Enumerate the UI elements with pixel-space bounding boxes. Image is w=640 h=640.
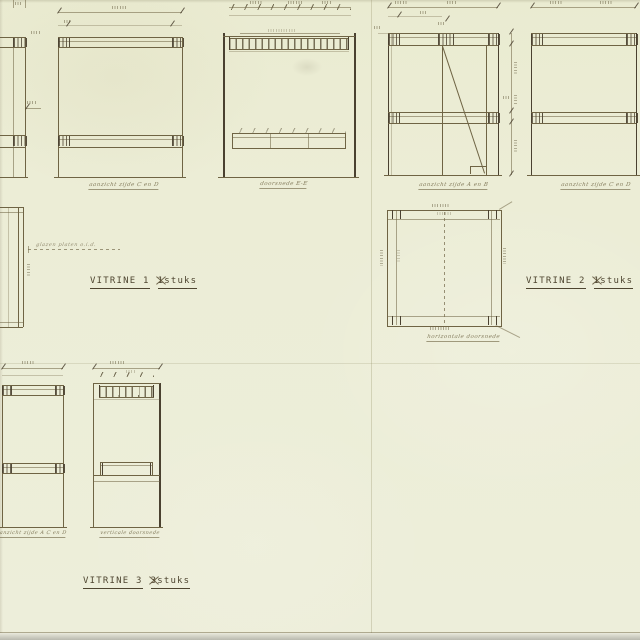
v1-plan-edge	[23, 207, 24, 327]
v2-plan-corner-post	[392, 210, 401, 219]
v1-ground-line	[218, 177, 359, 178]
v1-B-toprail-block	[58, 38, 70, 47]
v3-F-toprail-line	[2, 395, 63, 396]
v1-C-dim-line	[229, 7, 351, 8]
v2-E-toprail-line	[531, 45, 636, 46]
v2-E-midrail-block	[626, 113, 638, 123]
v1-B-midrail-line	[58, 147, 182, 148]
v1-B-midrail-block	[58, 136, 70, 146]
v2-D-dim-tick	[445, 15, 450, 21]
v2-E-toprail-block	[626, 34, 638, 45]
caption-v2-plan: horizontale doorsnede	[426, 334, 500, 342]
v2-E-dim-line	[531, 7, 636, 8]
dimension-text-illegible	[126, 370, 136, 373]
v2-E-midrail-line	[531, 116, 636, 117]
v2-ground-line	[384, 175, 502, 176]
dimension-text-illegible	[514, 95, 517, 105]
v1-A-toprail-block	[13, 38, 27, 47]
fold-crease-vertical	[371, 0, 372, 633]
vitrine1-quantity: 1stuks	[158, 276, 198, 289]
v1-C-right-edge	[354, 33, 356, 177]
caption-v2-front: aanzicht zijde A en B	[418, 182, 488, 190]
v1-B-left-edge	[58, 37, 59, 177]
v2-E-toprail-line	[531, 33, 636, 34]
v3-G-block-gap	[116, 387, 119, 395]
vitrine1-qty-unit: stuks	[164, 276, 197, 286]
v3-F-dim-tick	[61, 363, 66, 369]
dimension-text-illegible	[430, 327, 450, 330]
v1-plan-note-tick	[28, 246, 29, 253]
v2-D-left-inner	[391, 33, 392, 175]
caption-v3-front: aanzicht zijde A C en D	[0, 530, 67, 538]
v1-plan-line	[0, 207, 23, 208]
v1-C-shelf-side	[345, 133, 346, 148]
v2-plan-corner-post	[392, 316, 401, 325]
dimension-text-illegible	[600, 1, 612, 4]
vitrine2-label: VITRINE 2 1stuks	[526, 276, 633, 289]
dimension-text-illegible	[374, 26, 382, 29]
v1-plan-line	[0, 322, 23, 323]
v3-F-midrail-line	[2, 473, 63, 474]
dimension-text-illegible	[503, 248, 506, 264]
v1-B-dim-tick	[180, 7, 185, 13]
v3-F-right-edge	[63, 385, 64, 527]
scan-edge-left	[0, 0, 3, 640]
v2-plan-leader-line	[499, 201, 512, 210]
dimension-text-illegible	[288, 1, 302, 4]
v1-plan-inner-line	[8, 207, 9, 327]
v1-A-dim-tick	[25, 0, 26, 8]
drawing-sheet: aanzicht zijde C en D doorsnede E-E	[0, 0, 640, 640]
v1-plan-line	[0, 212, 23, 213]
v3-ground-line	[90, 527, 163, 528]
v3-G-left-edge	[93, 383, 94, 527]
v3-G-bracket	[153, 385, 154, 397]
v2-D-door-edge	[442, 45, 443, 175]
v2-D-dim-tick	[496, 2, 501, 8]
scan-edge-top	[0, 0, 640, 3]
v2-E-midrail-line	[531, 123, 636, 124]
v2-D-side-tick	[378, 33, 388, 34]
v3-F-toprail-block	[2, 386, 12, 395]
dimension-text-illegible	[438, 22, 446, 25]
dimension-text-illegible	[110, 361, 124, 364]
dimension-text-illegible	[31, 31, 41, 34]
v2-plan-centerline	[444, 212, 445, 323]
v2-D-door-hinge-block	[438, 34, 454, 45]
v1-A-midrail-block	[13, 136, 27, 146]
v2-D-left-edge	[388, 33, 389, 175]
v2-plan-inner-line	[396, 210, 397, 325]
v2-E-right-edge	[636, 33, 637, 175]
v3-G-block-gap	[136, 387, 139, 395]
dimension-text-illegible	[447, 1, 457, 4]
v1-A-midrail-line	[0, 147, 25, 148]
v3-G-tray-side	[152, 462, 153, 475]
sheet-bottom-edge	[0, 633, 640, 640]
v2-E-toprail-line	[531, 37, 636, 38]
v3-G-right-edge	[159, 383, 161, 527]
v3-G-tray-top	[100, 462, 153, 463]
v3-F-dim-line	[2, 375, 63, 376]
v2-E-midrail-block	[531, 113, 543, 123]
v2-D-midrail-line	[388, 112, 498, 113]
v1-ground-line	[0, 177, 28, 178]
dimension-text-illegible	[27, 264, 30, 276]
v1-plan-line	[0, 327, 23, 328]
v1-A-dim-tick	[13, 0, 14, 8]
v1-C-shelf-divider	[270, 134, 271, 148]
v2-D-midrail-line	[388, 116, 498, 117]
v2-D-toprail-block	[488, 34, 500, 45]
v1-C-shelf-top	[232, 133, 346, 134]
dimension-text-illegible	[437, 212, 451, 215]
v1-B-dim-line	[58, 12, 182, 13]
v2-D-right-edge	[498, 33, 499, 175]
dimension-text-illegible	[550, 1, 562, 4]
v2-E-dim-tick	[634, 2, 639, 8]
dimension-text-illegible	[503, 96, 510, 99]
vitrine2-quantity: 1stuks	[594, 276, 634, 289]
dimension-text-illegible	[322, 1, 332, 4]
v3-G-glass-block-row	[99, 386, 154, 398]
dimension-text-illegible	[250, 1, 262, 4]
vitrine1-label: VITRINE 1 1stuks	[90, 276, 197, 289]
v2-E-toprail-block	[531, 34, 543, 45]
dimension-text-illegible	[514, 62, 517, 74]
dimension-text-illegible	[432, 204, 450, 207]
caption-v3-section: verticale doorsnede	[99, 530, 160, 538]
v1-A-edge-line	[13, 37, 14, 177]
v3-G-top-line	[93, 383, 160, 384]
v3-G-dim-tick	[158, 363, 163, 369]
dimension-text-illegible	[380, 250, 383, 266]
caption-v2-side: aanzicht zijde C en D	[560, 182, 631, 190]
dimension-text-illegible	[64, 20, 72, 23]
v2-D-toprail-block	[388, 34, 400, 45]
v1-C-shelf-divider	[308, 134, 309, 148]
v2-D-door-swing-diagonal	[442, 46, 485, 174]
vitrine3-label: VITRINE 3 3stuks	[83, 576, 190, 589]
v1-C-top-inner-line	[229, 51, 349, 52]
caption-v1-front: aanzicht zijde C en D	[88, 182, 159, 190]
v2-plan-corner-post	[488, 210, 497, 219]
v2-ground-line	[527, 175, 640, 176]
v1-C-cap-line	[240, 33, 340, 34]
v3-ground-line	[0, 527, 67, 528]
annotation-glass-shelves: glazen platen o.i.d.	[35, 242, 96, 248]
v3-G-top-inner-line	[93, 399, 160, 400]
v3-G-bracket	[99, 385, 100, 397]
v1-C-top-line	[223, 36, 355, 37]
v1-ground-line	[54, 177, 186, 178]
v1-C-bracket	[229, 37, 230, 50]
v2-D-latch-detail	[470, 166, 471, 174]
v1-B-midrail-line	[58, 139, 182, 140]
vitrine3-quantity: 3stuks	[151, 576, 191, 589]
v1-plan-line	[18, 207, 19, 327]
v1-A-toprail-line	[0, 47, 25, 48]
dimension-text-illegible	[268, 29, 296, 32]
dimension-text-illegible	[420, 11, 428, 14]
v2-D-midrail-block	[388, 113, 400, 123]
v1-B-midrail-block	[172, 136, 184, 146]
v1-B-toprail-line	[58, 41, 182, 42]
v2-plan-corner-post	[488, 316, 497, 325]
dimension-text-illegible	[514, 140, 517, 152]
v2-E-left-edge	[531, 33, 532, 175]
pencil-smudge	[292, 58, 322, 76]
v3-G-shelf-rail	[93, 481, 160, 482]
dimension-text-illegible	[15, 2, 23, 5]
v3-G-shelf-rail	[93, 475, 160, 476]
v1-C-bracket	[348, 37, 349, 50]
v1-B-toprail-line	[58, 47, 182, 48]
v2-D-midrail-block	[488, 113, 500, 123]
v1-C-dim-line	[229, 15, 351, 16]
vitrine2-title: VITRINE 2	[526, 276, 586, 289]
v3-G-dim-line	[93, 368, 160, 369]
v1-B-right-edge	[182, 37, 183, 177]
v3-G-tray-lip	[100, 465, 153, 466]
v2-height-dim-tick	[509, 170, 514, 176]
v1-B-toprail-line	[58, 37, 182, 38]
vitrine1-title: VITRINE 1	[90, 276, 150, 289]
v1-plan-note-leader	[28, 249, 120, 250]
v1-C-shelf-bottom	[232, 148, 346, 149]
v3-F-midrail-block	[2, 464, 12, 473]
v2-D-midrail-line	[388, 123, 498, 124]
caption-v1-section: doorsnede E-E	[259, 181, 308, 189]
v1-C-shelf-lip	[232, 137, 346, 138]
v2-D-latch-detail	[470, 166, 486, 167]
v1-B-dim-line	[58, 25, 182, 26]
v1-C-left-edge	[223, 33, 225, 177]
v3-F-left-edge	[2, 385, 3, 527]
v2-D-door-edge	[486, 45, 487, 175]
v1-A-dim-line	[25, 108, 41, 109]
vitrine3-title: VITRINE 3	[83, 576, 143, 589]
v2-E-midrail-line	[531, 112, 636, 113]
v3-F-toprail-block	[55, 386, 65, 395]
v1-C-shelf-side	[232, 133, 233, 148]
v3-F-midrail-block	[55, 464, 65, 473]
v1-B-toprail-block	[172, 38, 184, 47]
vitrine3-qty-unit: stuks	[157, 576, 190, 586]
v2-height-dim-line	[511, 33, 512, 175]
vitrine2-qty-unit: stuks	[600, 276, 633, 286]
dimension-text-illegible	[397, 250, 400, 262]
dimension-text-illegible	[22, 361, 34, 364]
v3-G-tray-side	[100, 462, 101, 475]
v3-F-dim-line	[2, 368, 63, 369]
dimension-text-illegible	[112, 6, 126, 9]
v2-D-dim-line	[388, 7, 498, 8]
v2-plan-inner-line	[491, 210, 492, 325]
dimension-text-illegible	[395, 1, 407, 4]
v1-B-midrail-line	[58, 135, 182, 136]
v3-G-tray-foot	[150, 463, 151, 475]
v1-C-glass-block-row	[229, 38, 349, 50]
v3-G-tray-foot	[102, 463, 103, 475]
dimension-text-illegible	[27, 101, 37, 104]
